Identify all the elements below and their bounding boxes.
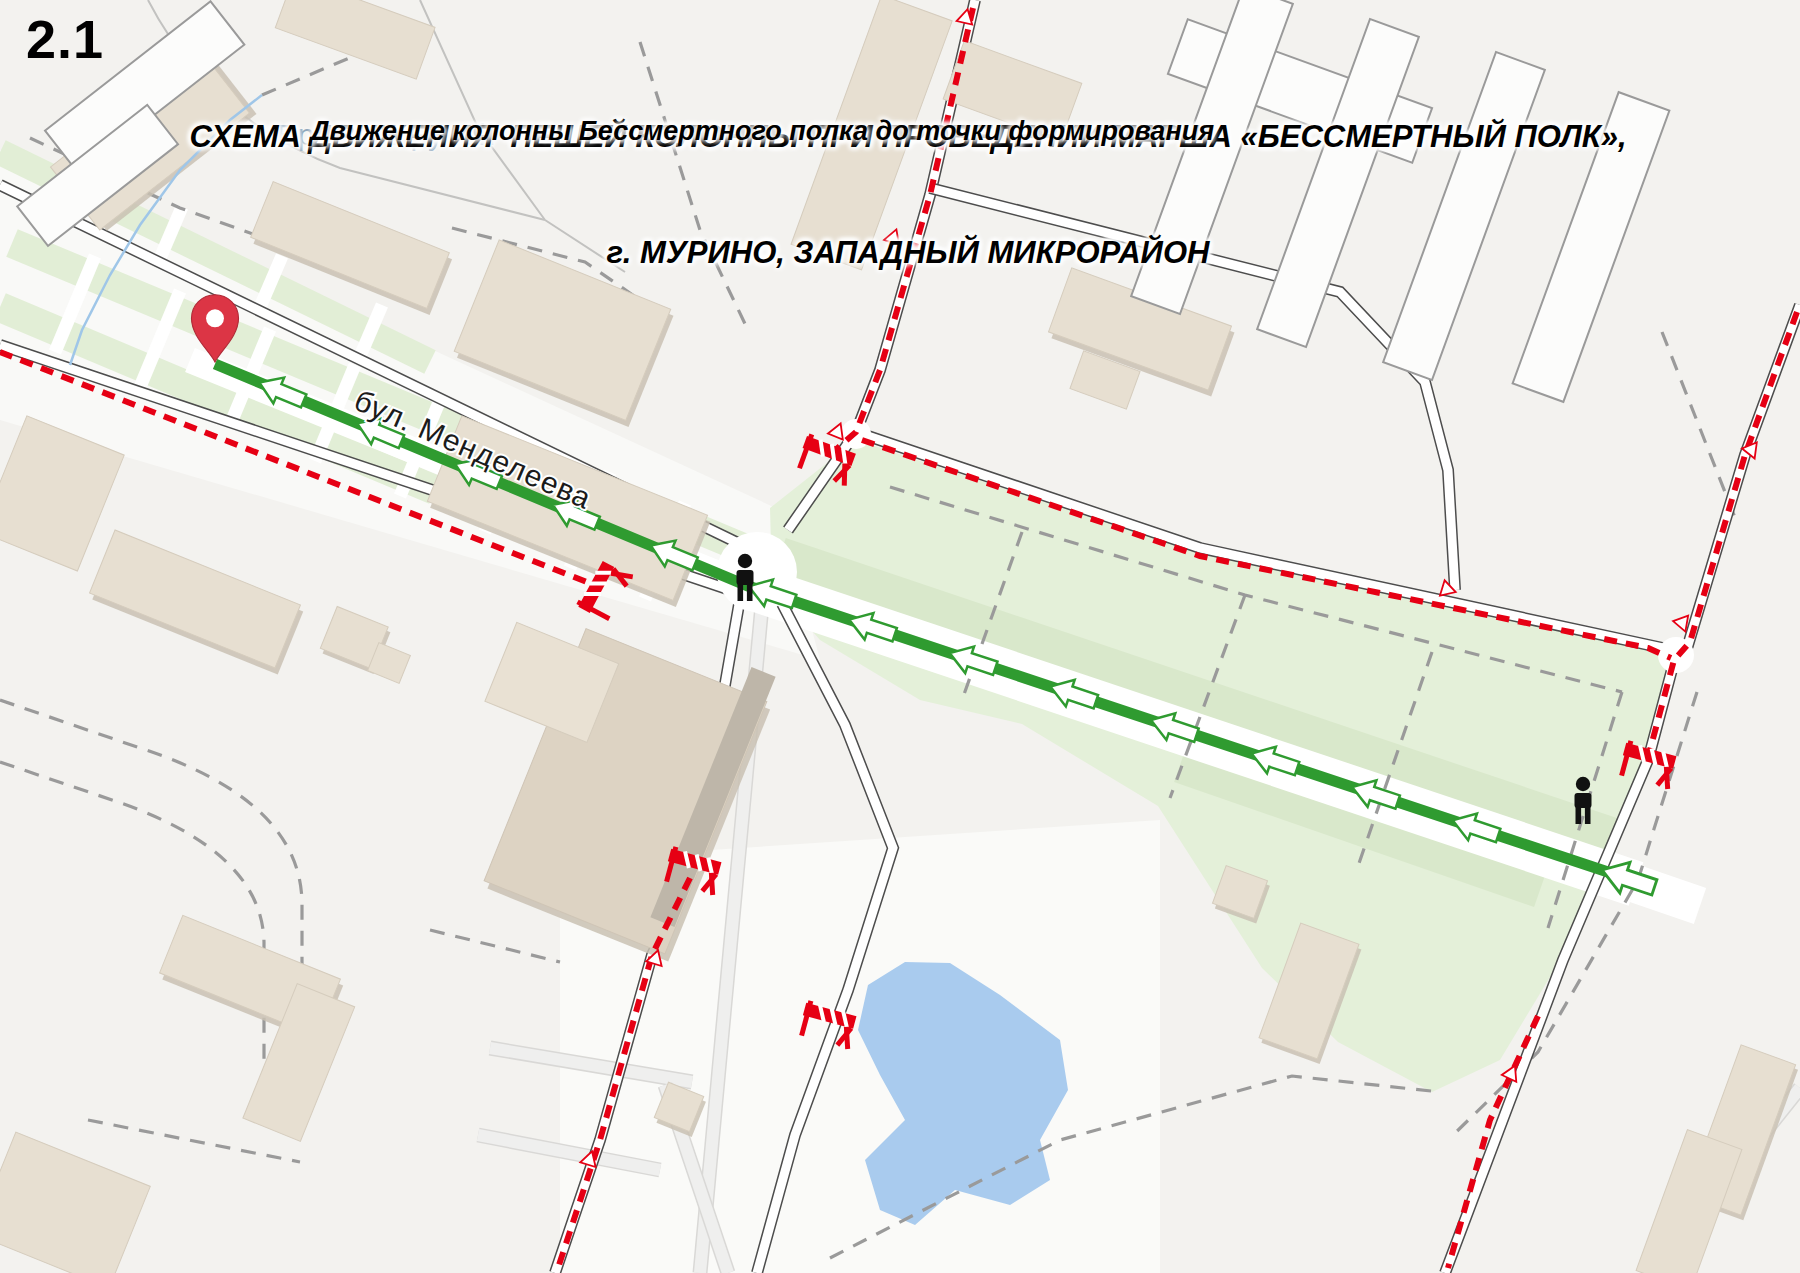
map-title: СХЕМА ДВИЖЕНИЯ ПЕШЕЙ КОЛОННЫ ПРИ ПРОВЕДЕ…	[189, 40, 1626, 350]
title-line-2: г. МУРИНО, ЗАПАДНЫЙ МИКРОРАЙОН	[189, 234, 1626, 273]
sheet-number: 2.1	[26, 8, 104, 70]
route-map: бул. Менделеева 2.1 Брачнев ручей СХЕМА …	[0, 0, 1800, 1273]
map-subtitle: Движение колонны Бессмертного полка до т…	[310, 116, 1214, 147]
